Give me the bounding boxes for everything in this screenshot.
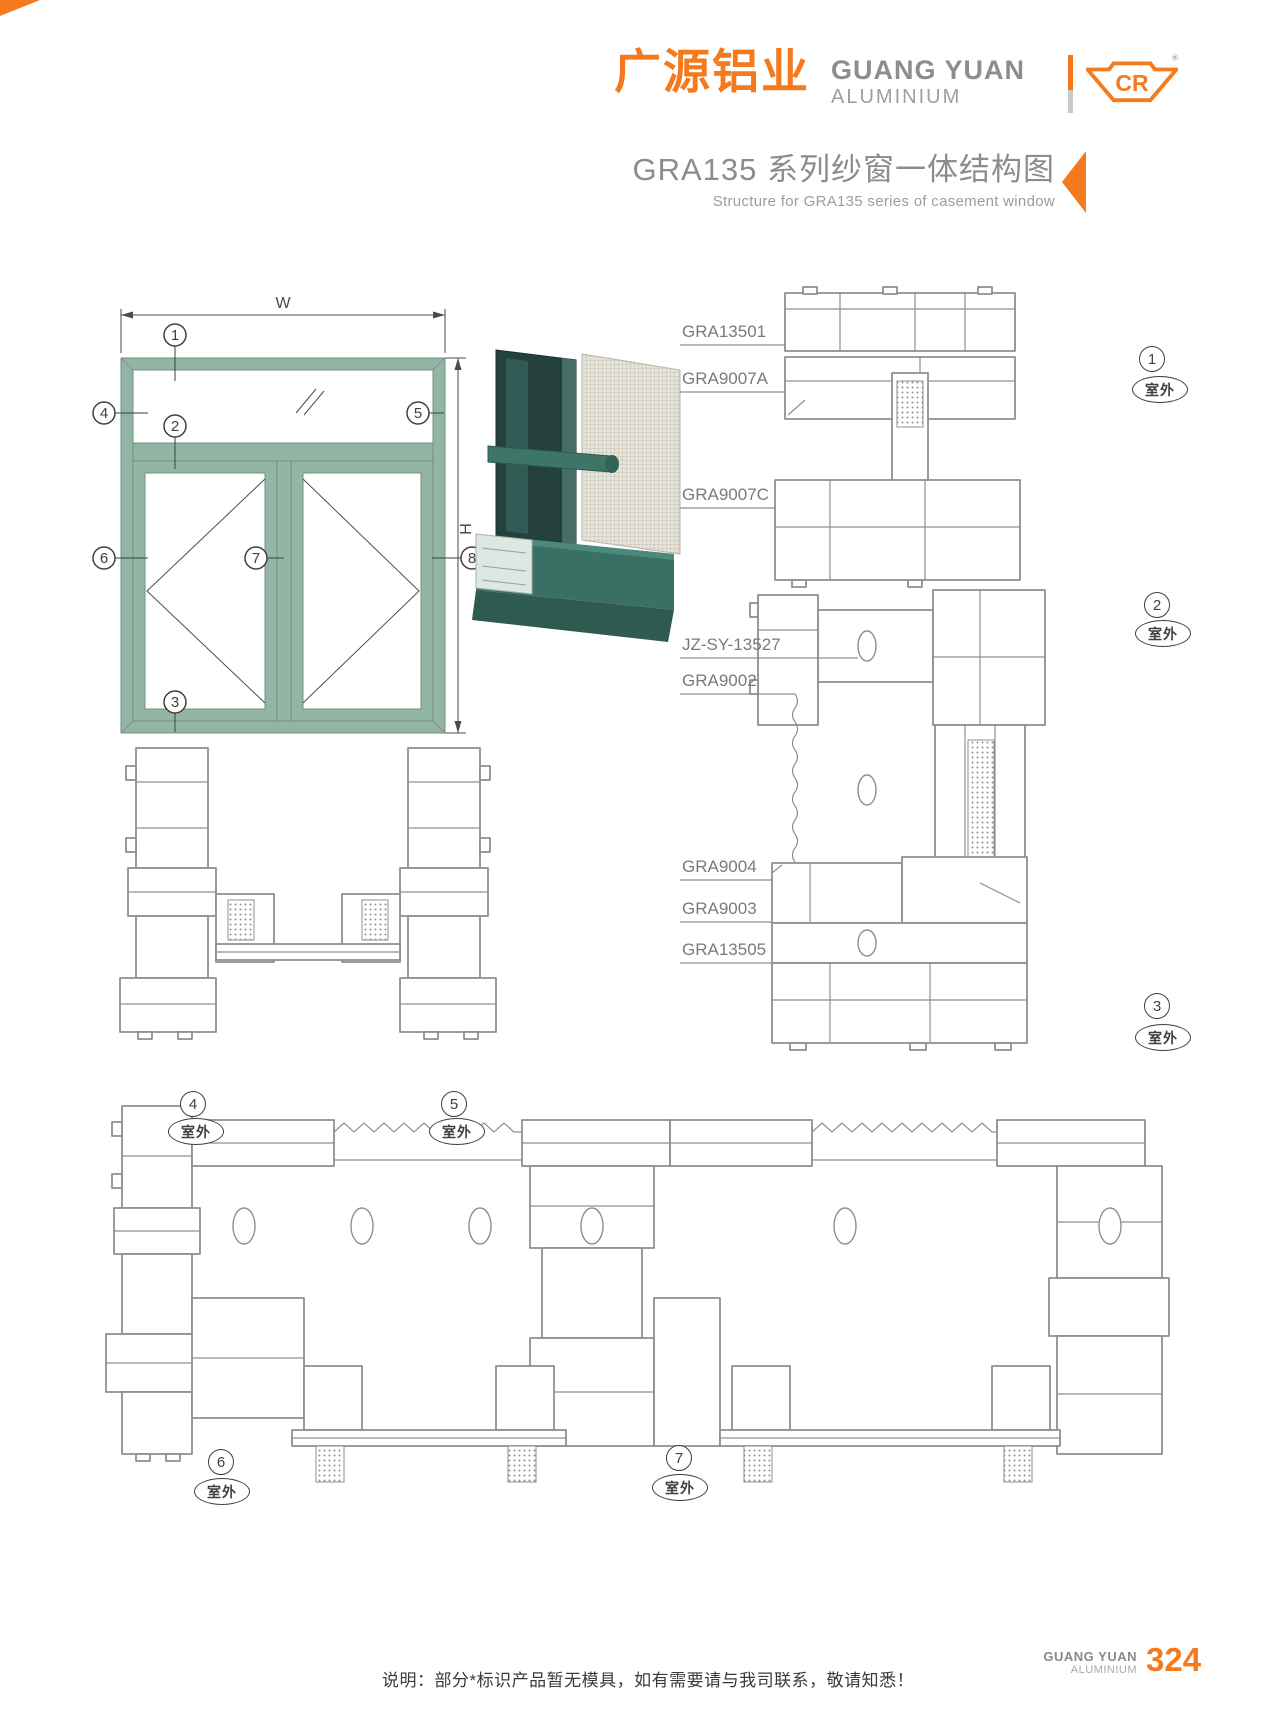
detail-marker-7-number: 7 <box>666 1445 692 1471</box>
callout-6: 6 <box>100 550 108 567</box>
part-label-gra9003: GRA9003 <box>682 899 757 918</box>
footer-brand-line2: ALUMINIUM <box>1043 1665 1137 1676</box>
detail-marker-7-outdoor-label: 室外 <box>652 1474 708 1501</box>
detail-marker-3-number: 3 <box>1144 993 1170 1019</box>
horizontal-section-6-7-drawing <box>92 1098 1187 1488</box>
registered-trademark-icon: ® <box>1172 52 1178 62</box>
window-elevation-diagram: W H <box>88 283 488 748</box>
footer-brand: GUANG YUAN ALUMINIUM <box>1043 1650 1137 1676</box>
callout-4: 4 <box>100 405 108 422</box>
callout-5: 5 <box>414 405 422 422</box>
transom-profile <box>133 443 433 461</box>
detail-marker-3-outdoor-label: 室外 <box>1135 1024 1191 1051</box>
glazing-hatch-block <box>228 900 254 940</box>
break-line-zigzag <box>812 1123 997 1132</box>
footer-disclaimer-note: 说明：部分*标识产品暂无模具，如有需要请与我司联系，敬请知悉！ <box>382 1666 914 1691</box>
profile-gra13501 <box>785 287 1015 351</box>
profile-gra9004 <box>772 857 1027 923</box>
part-label-gra9004: GRA9004 <box>682 857 757 876</box>
right-profile-stack <box>400 748 496 1039</box>
extrusion-cut-face <box>476 534 532 594</box>
screw-channel-oval <box>858 930 876 956</box>
glazing-hatch-block <box>897 381 923 427</box>
title-block: GRA135 系列纱窗一体结构图 Structure for GRA135 se… <box>632 152 1055 210</box>
break-line-zigzag <box>334 1123 522 1132</box>
center-mullion <box>277 461 291 721</box>
page-title: GRA135 系列纱窗一体结构图 <box>632 152 1055 188</box>
profile-end-cap <box>605 455 619 473</box>
screw-channel-ovals <box>233 1208 1121 1244</box>
corner-accent-triangle <box>0 0 40 16</box>
profile-gra9007c <box>775 480 1020 587</box>
glass-panel-assembly <box>216 894 400 962</box>
callout-3: 3 <box>171 694 179 711</box>
screw-channel-oval <box>858 631 876 661</box>
glazing-hatch-block <box>508 1446 536 1482</box>
company-logo-icon: CR ® <box>1086 50 1178 112</box>
catalog-page: 广源铝业 GUANG YUAN ALUMINIUM CR ® GRA135 系列… <box>0 0 1277 1721</box>
brand-english-name: GUANG YUAN ALUMINIUM <box>831 57 1025 107</box>
top-rail-profiles <box>192 1120 1145 1166</box>
glazing-hatch-block <box>968 740 994 865</box>
detail-marker-1-number: 1 <box>1139 346 1165 372</box>
left-sash <box>133 461 277 721</box>
part-label-jz-sy-13527: JZ-SY-13527 <box>682 635 781 654</box>
part-label-gra9007c: GRA9007C <box>682 485 769 504</box>
detail-marker-2-outdoor-label: 室外 <box>1135 620 1191 647</box>
profile-gra13505 <box>772 963 1027 1050</box>
detail-marker-5-outdoor-label: 室外 <box>429 1118 485 1145</box>
page-number: 324 <box>1146 1643 1201 1676</box>
dimension-w-label: W <box>275 295 291 312</box>
screw-channel-oval <box>858 775 876 805</box>
detail-marker-2-number: 2 <box>1144 592 1170 618</box>
right-sash <box>291 461 433 721</box>
page-subtitle: Structure for GRA135 series of casement … <box>632 193 1055 210</box>
footer-brand-line1: GUANG YUAN <box>1043 1650 1137 1663</box>
brand-chinese-name: 广源铝业 <box>614 48 810 95</box>
callout-1: 1 <box>171 327 179 344</box>
glass-reflection <box>506 358 528 534</box>
callout-7: 7 <box>252 550 260 567</box>
left-profile-stack <box>120 748 216 1039</box>
detail-marker-6-number: 6 <box>208 1449 234 1475</box>
logo-letters: CR <box>1115 70 1149 96</box>
detail-marker-5-number: 5 <box>441 1091 467 1117</box>
detail-marker-6-outdoor-label: 室外 <box>194 1478 250 1505</box>
glazing-hatch-block <box>744 1446 772 1482</box>
glazing-hatch-block <box>1004 1446 1032 1482</box>
part-label-gra13501: GRA13501 <box>682 322 766 341</box>
part-label-gra9007a: GRA9007A <box>682 369 769 388</box>
vertical-section-drawing: GRA13501 GRA9007A GRA9007C JZ-SY-13527 G… <box>680 285 1180 1085</box>
detail-marker-1-outdoor-label: 室外 <box>1132 376 1188 403</box>
profile-gra9003 <box>772 923 1027 963</box>
part-label-gra9002: GRA9002 <box>682 671 757 690</box>
brand-english-line2: ALUMINIUM <box>831 87 1025 107</box>
insect-screen-mesh <box>582 354 680 554</box>
title-arrow-icon <box>1062 151 1086 213</box>
part-label-gra13505: GRA13505 <box>682 940 766 959</box>
product-3d-render <box>462 348 687 648</box>
detail-marker-4-number: 4 <box>180 1091 206 1117</box>
horizontal-section-4-5-drawing <box>108 742 508 1077</box>
brand-divider-bar <box>1068 55 1073 113</box>
glazing-hatch-block <box>362 900 388 940</box>
detail-marker-4-outdoor-label: 室外 <box>168 1118 224 1145</box>
brand-english-line1: GUANG YUAN <box>831 57 1025 84</box>
callout-2: 2 <box>171 418 179 435</box>
glazing-hatch-block <box>316 1446 344 1482</box>
